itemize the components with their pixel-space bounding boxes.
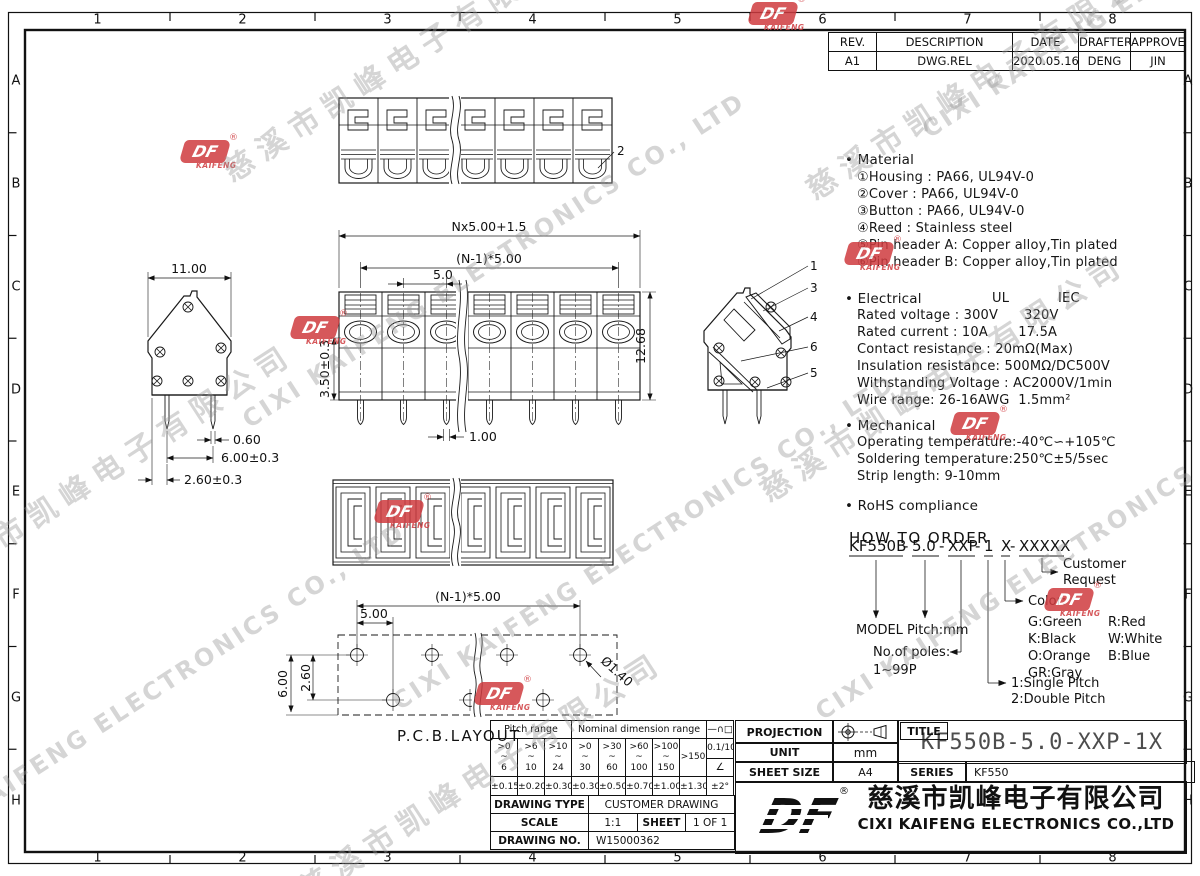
drawing-type-label: DRAWING TYPE	[491, 796, 589, 814]
range-cell: >30 ~ 60	[599, 739, 626, 777]
order-code: KF550B - 5.0 - XXP - 1 X - XXXXX	[849, 537, 1070, 555]
projection-symbol-cell	[832, 720, 899, 744]
date-value: 2020.05.16	[1013, 52, 1079, 71]
electrical-item: Wire range: 26-16AWG 1.5mm²	[857, 393, 1071, 408]
dim-front-total: Nx5.00+1.5	[452, 219, 527, 234]
drawing-sheet: 1122334455667788AABBCCDDEEFFGGHH REV. DE…	[0, 0, 1200, 876]
dim-pcb-offset: 2.60	[298, 664, 313, 692]
series-label: SERIES	[897, 761, 967, 783]
zone-label: A	[12, 74, 21, 89]
zone-label: 2	[238, 13, 246, 28]
zone-label: C	[11, 279, 20, 294]
sheet-size-label: SHEET SIZE	[735, 761, 834, 783]
callout-6: 6	[810, 340, 818, 354]
company-name-en: CIXI KAIFENG ELECTRONICS CO.,LTD	[846, 814, 1186, 834]
material-item: ⑤Pin header A: Copper alloy,Tin plated	[857, 238, 1118, 253]
range-cell: >100 ~ 150	[653, 739, 680, 777]
scale-value: 1:1	[589, 814, 638, 832]
tol-cell: ±2°	[707, 777, 734, 796]
drafter-value: DENG	[1079, 52, 1131, 71]
order-poles-range: 1~99P	[873, 663, 917, 678]
dim-front-height: 12.68	[633, 328, 648, 364]
zone-label: E	[1184, 485, 1192, 500]
color-black: K:Black	[1028, 632, 1077, 647]
tol-cell: ±0.20	[518, 777, 545, 796]
material-item: ②Cover : PA66, UL94V-0	[857, 187, 1019, 202]
zone-label: 4	[528, 13, 536, 28]
series-value: KF550	[965, 761, 1195, 783]
mechanical-title: • Mechanical	[845, 418, 936, 434]
range-cell: >60 ~ 100	[626, 739, 653, 777]
zone-label: D	[11, 382, 21, 397]
unit-label: UNIT	[735, 742, 834, 763]
tol-cell: ±1.00	[653, 777, 680, 796]
color-blue: B:Blue	[1108, 649, 1150, 664]
drafter-header: DRAFTER	[1079, 33, 1131, 52]
callout-4: 4	[810, 310, 818, 324]
dim-side-width: 11.00	[171, 261, 207, 276]
order-customer2: Request	[1063, 573, 1116, 588]
zone-label: 5	[673, 851, 681, 866]
electrical-item: Withstanding Voltage : AC2000V/1min	[857, 376, 1112, 391]
electrical-item: Rated voltage : 300V 320V	[857, 308, 1059, 323]
title-cell: TITLE KF550B-5.0-XXP-1X	[897, 720, 1187, 764]
company-names: 慈溪市凯峰电子有限公司 CIXI KAIFENG ELECTRONICS CO.…	[846, 784, 1186, 834]
scale-label: SCALE	[491, 814, 589, 832]
color-white: W:White	[1108, 632, 1162, 647]
flatness-value: 0.1/10	[707, 739, 733, 759]
zone-label: F	[12, 588, 19, 603]
range-cell: >6 ~ 10	[518, 739, 545, 777]
dim-pcb-first: 5.00	[360, 606, 388, 621]
bottom-view	[333, 477, 613, 568]
desc-header: DESCRIPTION	[877, 33, 1013, 52]
order-color-label: Color:	[1028, 594, 1066, 609]
pcb-holes	[346, 644, 591, 711]
unit-value: mm	[832, 742, 899, 763]
revision-row: A1 DWG.REL 2020.05.16 DENG JIN	[829, 52, 1186, 71]
tol-cell: ±0.70	[626, 777, 653, 796]
front-view: Nx5.00+1.5 (N-1)*5.00 5.0 12.68 3.50±0.3…	[317, 219, 656, 444]
rohs-note: • RoHS compliance	[845, 498, 978, 514]
company-block: DF ® 慈溪市凯峰电子有限公司 CIXI KAIFENG ELECTRONIC…	[735, 781, 1187, 854]
zone-label: 6	[818, 13, 826, 28]
symbols-header: —∩□	[707, 721, 734, 739]
zone-label: 2	[238, 851, 246, 866]
drawing-type-value: CUSTOMER DRAWING	[589, 796, 735, 814]
zone-label: B	[12, 177, 21, 192]
dim-front-pin-offset: 3.50±0.3	[317, 340, 332, 398]
drawing-no-value: W15000362	[589, 832, 735, 850]
code-model: KF550B	[849, 537, 906, 555]
dim-pcb-pitch: (N-1)*5.00	[435, 589, 501, 604]
revision-table: REV. DESCRIPTION DATE DRAFTER APPROVER A…	[828, 32, 1186, 71]
electrical-item: Contact resistance : 20mΩ(Max)	[857, 342, 1073, 357]
electrical-item: Insulation resistance: 500MΩ/DC500V	[857, 359, 1110, 374]
sheet-size-value: A4	[832, 761, 899, 783]
dim-front-pitch: (N-1)*5.00	[456, 251, 522, 266]
side-view-right: 1 3 4 6 5	[704, 259, 818, 424]
tolerance-table: Pitch range Nominal dimension range —∩□ …	[490, 720, 734, 796]
material-item: ⑥Pin header B: Copper alloy,Tin plated	[857, 255, 1118, 270]
drawing-no-label: DRAWING NO.	[491, 832, 589, 850]
color-red: R:Red	[1108, 615, 1146, 630]
callout-1: 1	[810, 259, 818, 273]
approver-value: JIN	[1131, 52, 1186, 71]
callout-5: 5	[810, 366, 818, 380]
company-logo-icon: DF	[740, 785, 840, 849]
material-item: ③Button : PA66, UL94V-0	[857, 204, 1025, 219]
dim-side-edge: 2.60±0.3	[184, 472, 242, 487]
mechanical-item: Soldering temperature:250℃±5/5sec	[857, 452, 1109, 467]
tol-cell: ±0.30	[545, 777, 572, 796]
how-to-order: HOW TO ORDER KF550B - 5.0 - XXP - 1 X - …	[845, 525, 1190, 715]
zone-label: 5	[673, 13, 681, 28]
mechanical-item: Operating temperature:-40℃∽+105℃	[857, 435, 1116, 450]
angle-icon: ∠	[707, 759, 733, 776]
zone-label: 1	[93, 13, 101, 28]
nominal-range-header: Nominal dimension range	[572, 721, 707, 739]
rev-header: REV.	[829, 33, 877, 52]
dim-side-pin-span: 6.00±0.3	[221, 450, 279, 465]
company-name-zh: 慈溪市凯峰电子有限公司	[846, 784, 1186, 814]
drawing-views: 2 11.00 0.60 6.00±0.3 2.60±0.3	[25, 30, 845, 745]
dim-front-pin-width: 1.00	[469, 429, 497, 444]
zone-label: A	[1184, 74, 1193, 89]
zone-label: G	[11, 690, 21, 705]
order-pitch2: 2:Double Pitch	[1011, 692, 1106, 707]
electrical-iec: IEC	[1058, 291, 1080, 306]
tol-cell: ±0.30	[572, 777, 599, 796]
material-item: ④Reed : Stainless steel	[857, 221, 1013, 236]
color-gray: GR:Gray	[1028, 666, 1082, 681]
pitch-range-header: Pitch range	[491, 721, 572, 739]
electrical-ul: UL	[992, 291, 1009, 306]
zone-label: 7	[963, 13, 971, 28]
callout-3: 3	[810, 281, 818, 295]
drawing-info-table: DRAWING TYPE CUSTOMER DRAWING SCALE 1:1 …	[490, 795, 735, 850]
desc-value: DWG.REL	[877, 52, 1013, 71]
zone-label: D	[1183, 382, 1193, 397]
color-green: G:Green	[1028, 615, 1082, 630]
range-cell: >10 ~ 24	[545, 739, 572, 777]
approver-header: APPROVER	[1131, 33, 1186, 52]
projection-label: PROJECTION	[735, 720, 834, 744]
code-sep: -	[903, 537, 908, 555]
sheet-label: SHEET	[637, 814, 686, 832]
code-sep: -	[939, 537, 944, 555]
zone-label: 4	[528, 851, 536, 866]
range-cell: >0 ~ 6	[491, 739, 518, 777]
code-pitchtype: 1	[984, 537, 994, 555]
material-title: • Material	[845, 152, 914, 168]
code-poles: XXP	[948, 537, 978, 555]
zone-label: 3	[383, 851, 391, 866]
code-sep: -	[975, 537, 980, 555]
order-customer1: Customer	[1063, 557, 1127, 572]
color-orange: O:Orange	[1028, 649, 1090, 664]
zone-label: B	[1184, 177, 1193, 192]
electrical-title: • Electrical	[845, 291, 922, 307]
dim-front-one: 5.0	[433, 267, 453, 282]
mechanical-item: Strip length: 9-10mm	[857, 469, 1000, 484]
zone-label: 3	[383, 13, 391, 28]
first-angle-projection-icon	[834, 722, 897, 742]
zone-label: H	[11, 793, 21, 808]
range-cell: >150	[680, 739, 707, 777]
code-pitch: 5.0	[912, 537, 936, 555]
dim-side-pin-width: 0.60	[233, 432, 261, 447]
sheet-value: 1 OF 1	[686, 814, 735, 832]
callout-2: 2	[617, 144, 625, 158]
drawing-title: KF550B-5.0-XXP-1X	[921, 730, 1163, 755]
material-item: ①Housing : PA66, UL94V-0	[857, 170, 1034, 185]
range-cell: >0 ~ 30	[572, 739, 599, 777]
code-sep: -	[1010, 537, 1015, 555]
zone-label: 1	[93, 851, 101, 866]
rev-value: A1	[829, 52, 877, 71]
title-label: TITLE	[900, 722, 948, 740]
zone-label: C	[1183, 279, 1192, 294]
electrical-item: Rated current : 10A 17.5A	[857, 325, 1057, 340]
top-view: 2	[339, 95, 625, 186]
tol-cell: ±0.50	[599, 777, 626, 796]
side-view-left: 11.00 0.60 6.00±0.3 2.60±0.3	[138, 261, 279, 487]
symbol-cell: 0.1/10∠	[707, 739, 734, 777]
order-poles-label: No.of poles:	[873, 645, 950, 660]
tol-cell: ±1.30	[680, 777, 707, 796]
zone-label: 8	[1108, 13, 1116, 28]
date-header: DATE	[1013, 33, 1079, 52]
d im-pcb-height: 6.00	[275, 670, 290, 698]
zone-label: E	[12, 485, 20, 500]
code-custom: XXXXX	[1019, 537, 1070, 555]
order-model-label: MODEL Pitch:mm	[856, 623, 968, 638]
tol-cell: ±0.15	[491, 777, 518, 796]
